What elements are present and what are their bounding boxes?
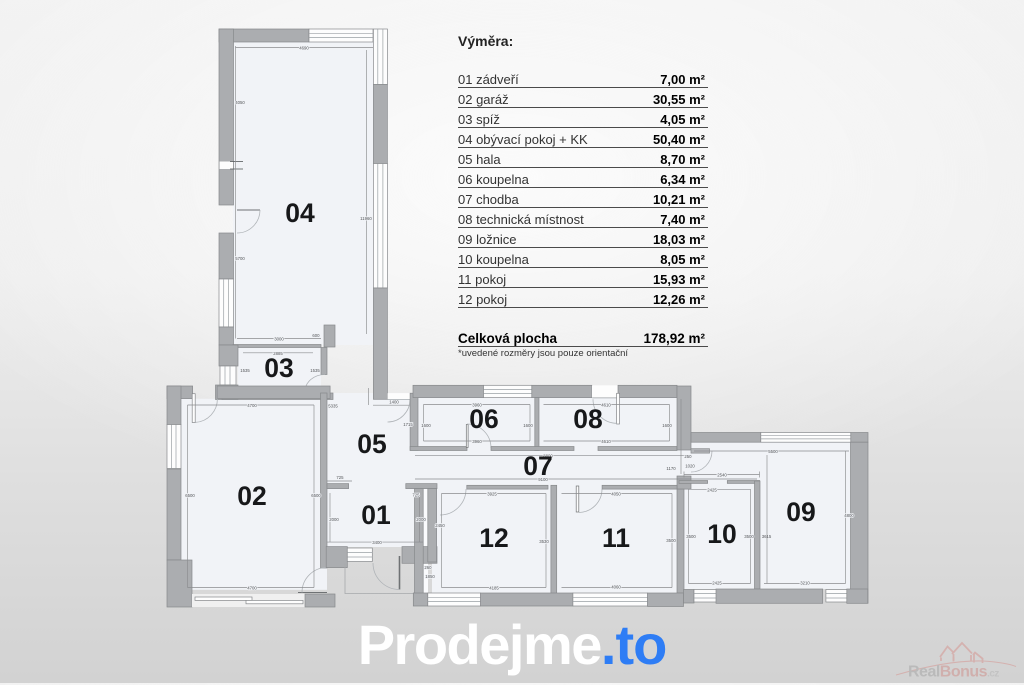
svg-text:2000: 2000 bbox=[416, 517, 426, 522]
svg-text:4690: 4690 bbox=[299, 46, 309, 51]
svg-text:6500: 6500 bbox=[185, 493, 195, 498]
svg-text:10: 10 bbox=[707, 519, 736, 549]
svg-text:03: 03 bbox=[264, 353, 293, 383]
svg-text:4700: 4700 bbox=[247, 586, 257, 591]
svg-text:1715: 1715 bbox=[403, 422, 413, 427]
svg-text:3500: 3500 bbox=[686, 534, 696, 539]
svg-text:2000: 2000 bbox=[329, 517, 339, 522]
svg-text:1600: 1600 bbox=[421, 423, 431, 428]
svg-text:725: 725 bbox=[412, 493, 420, 498]
svg-text:04: 04 bbox=[285, 198, 315, 228]
svg-text:02: 02 bbox=[237, 481, 266, 511]
svg-text:08: 08 bbox=[573, 404, 602, 434]
svg-text:250: 250 bbox=[684, 454, 692, 459]
svg-text:2450: 2450 bbox=[435, 523, 445, 528]
svg-text:5335: 5335 bbox=[328, 404, 338, 409]
svg-text:6500: 6500 bbox=[311, 493, 321, 498]
svg-text:1600: 1600 bbox=[523, 423, 533, 428]
svg-text:3960: 3960 bbox=[472, 439, 482, 444]
svg-text:5500: 5500 bbox=[768, 449, 778, 454]
svg-text:1400: 1400 bbox=[389, 400, 399, 405]
svg-text:07: 07 bbox=[523, 451, 552, 481]
svg-text:1170: 1170 bbox=[666, 466, 676, 471]
svg-text:1535: 1535 bbox=[240, 368, 250, 373]
svg-text:2540: 2540 bbox=[717, 473, 727, 478]
svg-text:3500: 3500 bbox=[744, 534, 754, 539]
svg-text:05: 05 bbox=[357, 429, 386, 459]
svg-text:11: 11 bbox=[602, 523, 630, 553]
svg-text:11960: 11960 bbox=[360, 216, 372, 221]
svg-text:2425: 2425 bbox=[712, 581, 722, 586]
svg-text:09: 09 bbox=[786, 497, 815, 527]
svg-text:1535: 1535 bbox=[310, 368, 320, 373]
svg-text:4050: 4050 bbox=[611, 492, 621, 497]
svg-text:600: 600 bbox=[312, 333, 320, 338]
svg-text:1600: 1600 bbox=[662, 423, 672, 428]
svg-text:1020: 1020 bbox=[685, 464, 695, 469]
svg-text:3925: 3925 bbox=[487, 492, 497, 497]
svg-text:5700: 5700 bbox=[235, 256, 245, 261]
svg-text:725: 725 bbox=[336, 475, 344, 480]
svg-text:06: 06 bbox=[469, 404, 498, 434]
svg-text:4185: 4185 bbox=[489, 586, 499, 591]
svg-text:1850: 1850 bbox=[425, 574, 435, 579]
svg-text:4050: 4050 bbox=[235, 100, 245, 105]
svg-text:4060: 4060 bbox=[611, 585, 621, 590]
svg-text:RealBonus.cz: RealBonus.cz bbox=[908, 664, 999, 681]
svg-text:4800: 4800 bbox=[844, 513, 854, 518]
svg-text:3530: 3530 bbox=[539, 539, 549, 544]
svg-text:3000: 3000 bbox=[274, 337, 284, 342]
svg-text:4610: 4610 bbox=[601, 439, 611, 444]
svg-text:3500: 3500 bbox=[666, 538, 676, 543]
svg-text:3400: 3400 bbox=[372, 540, 382, 545]
svg-text:12: 12 bbox=[479, 523, 508, 553]
svg-text:3210: 3210 bbox=[800, 581, 810, 586]
svg-text:4700: 4700 bbox=[247, 403, 257, 408]
svg-text:01: 01 bbox=[361, 500, 390, 530]
svg-text:260: 260 bbox=[424, 565, 432, 570]
svg-text:2425: 2425 bbox=[707, 488, 717, 493]
